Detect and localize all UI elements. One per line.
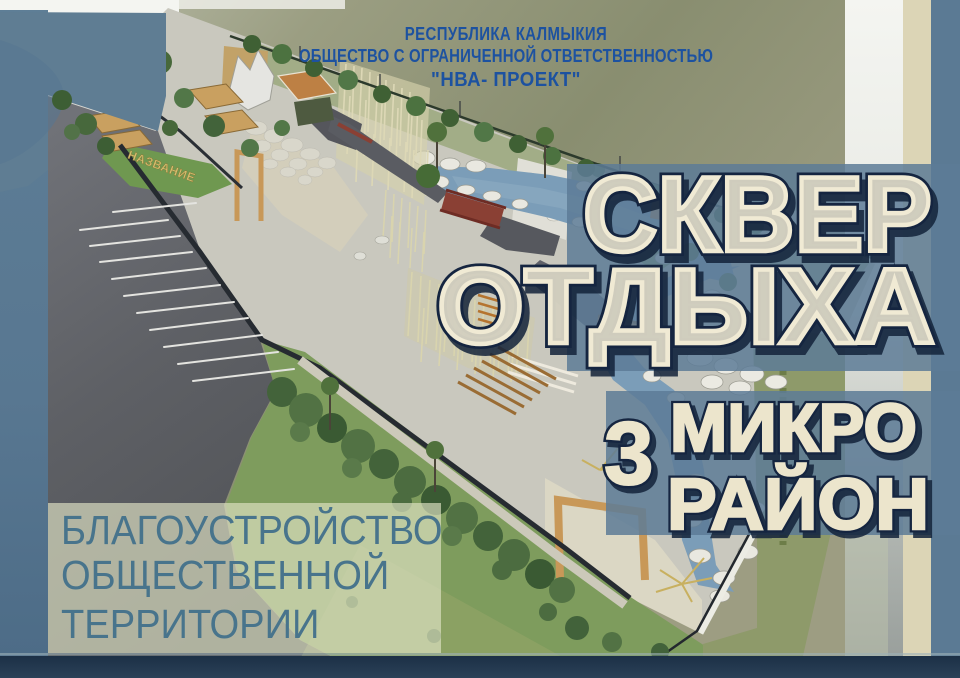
svg-text:3: 3 [604,403,654,503]
svg-text:ТЕРРИТОРИИ: ТЕРРИТОРИИ [61,602,319,648]
svg-text:ОБЩЕСТВО С ОГРАНИЧЕННОЙ ОТВЕТС: ОБЩЕСТВО С ОГРАНИЧЕННОЙ ОТВЕТСТВЕННОСТЬЮ [299,46,713,67]
svg-text:РЕСПУБЛИКА КАЛМЫКИЯ: РЕСПУБЛИКА КАЛМЫКИЯ [405,24,607,45]
svg-text:БЛАГОУСТРОЙСТВО: БЛАГОУСТРОЙСТВО [61,507,443,554]
svg-text:ОТДЫХА: ОТДЫХА [437,246,935,366]
svg-text:ОБЩЕСТВЕННОЙ: ОБЩЕСТВЕННОЙ [61,552,389,599]
svg-text:РАЙОН: РАЙОН [667,463,929,545]
svg-text:"НВА- ПРОЕКТ": "НВА- ПРОЕКТ" [431,69,581,91]
svg-text:МИКРО: МИКРО [670,390,917,466]
